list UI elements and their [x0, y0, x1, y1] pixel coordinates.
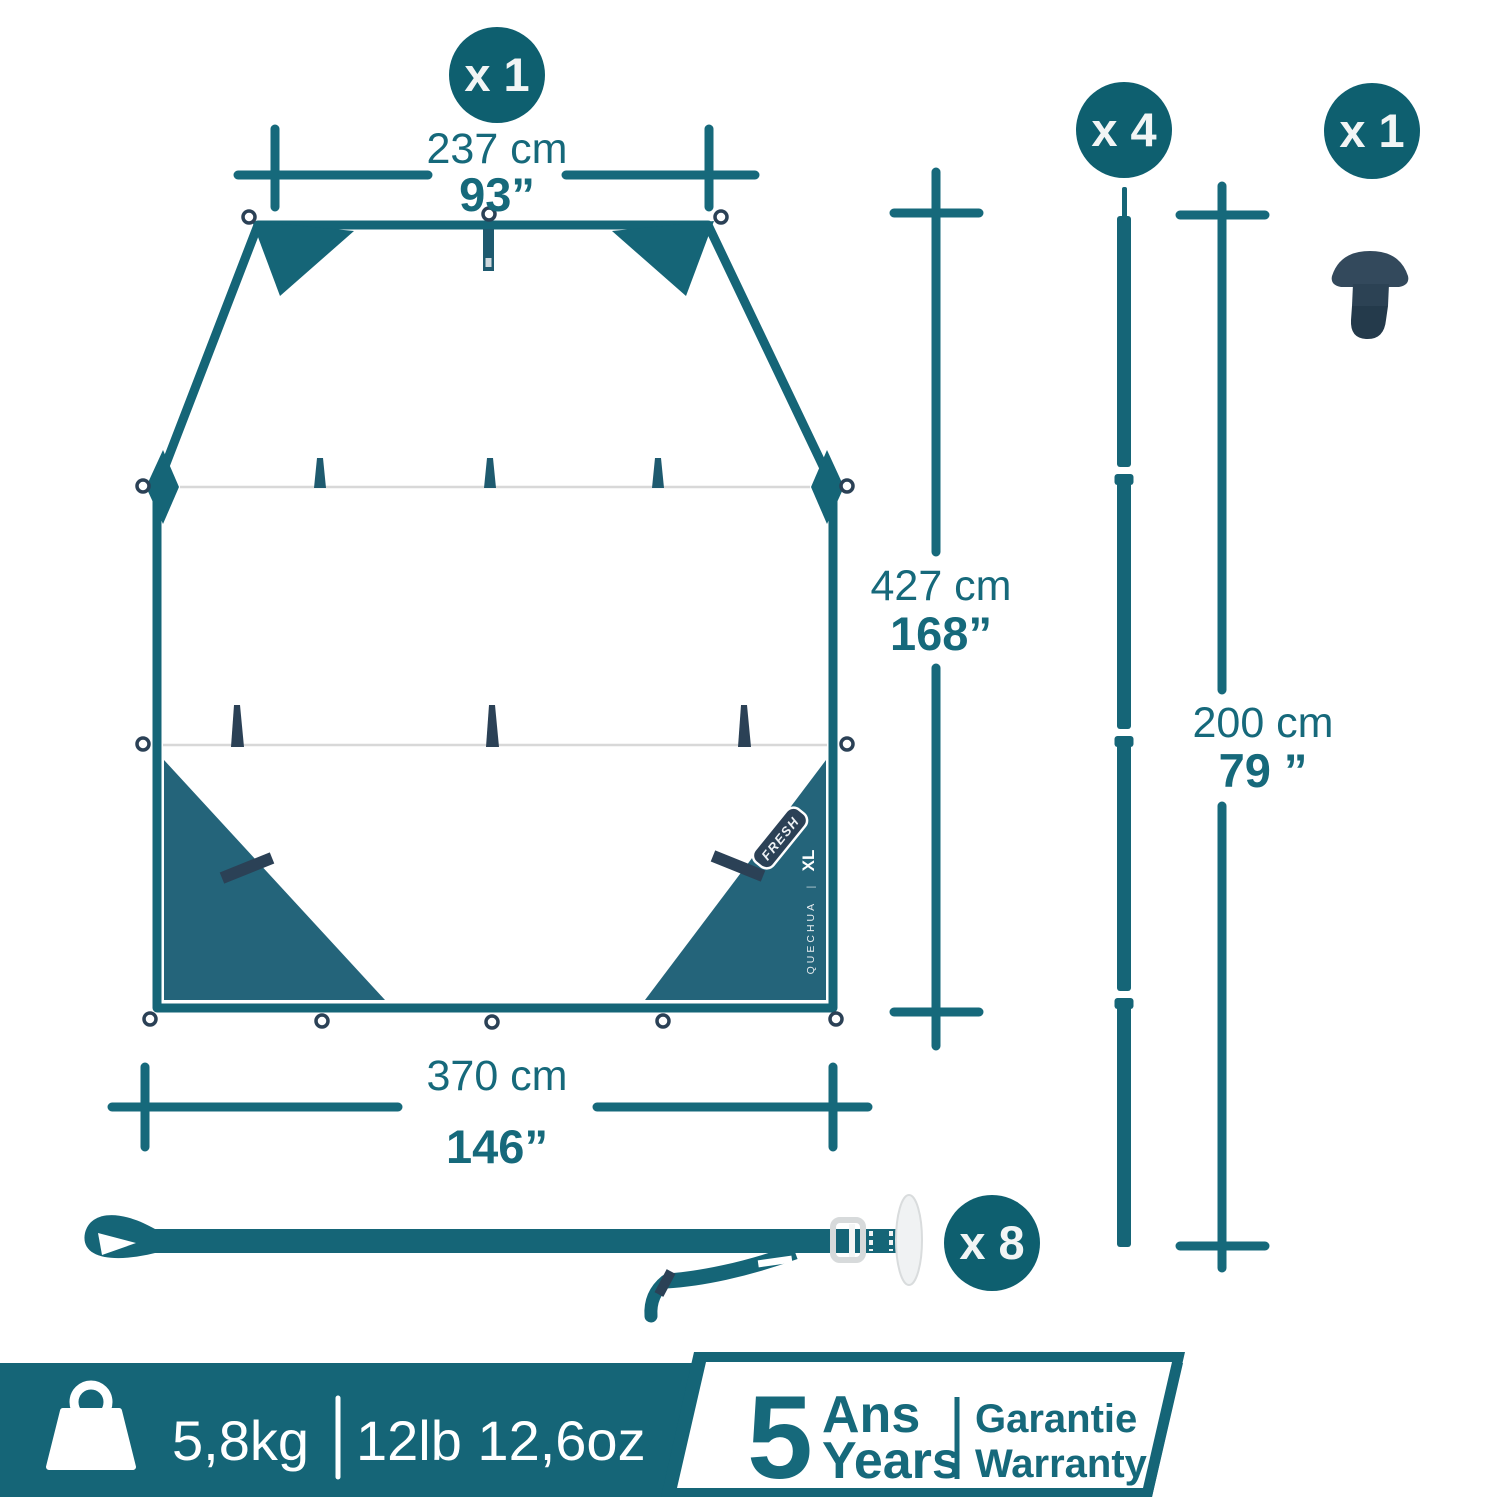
- pole-ferrule: [1115, 474, 1134, 485]
- brand-name: QUECHUA: [805, 901, 817, 975]
- loop-icon: [137, 480, 149, 492]
- badge-count: x 8: [959, 1216, 1024, 1269]
- loop-icon: [830, 1013, 842, 1025]
- dimension-metric: 427 cm: [870, 562, 1011, 610]
- pole-segment: [1117, 216, 1131, 467]
- loop-icon: [841, 480, 853, 492]
- peg-stem-lower: [1351, 306, 1388, 339]
- strap-buckle-window: [849, 1224, 855, 1258]
- weight-metric: 5,8kg: [172, 1409, 309, 1472]
- brand-separator: |: [806, 886, 817, 889]
- strap-illustration: [84, 1195, 922, 1316]
- dimension-metric: 370 cm: [426, 1052, 567, 1100]
- badge-count: x 4: [1091, 103, 1156, 156]
- pole-segment: [1117, 474, 1131, 729]
- pole-segment: [1117, 736, 1131, 991]
- loop-icon: [486, 1016, 498, 1028]
- dimension-metric: 237 cm: [426, 125, 567, 173]
- badge-count: x 1: [464, 48, 529, 101]
- peg-cap: [1332, 251, 1409, 287]
- strap-band: [150, 1229, 910, 1253]
- pole-tip: [1122, 187, 1127, 218]
- tarp-center-strap-buckle: [486, 258, 492, 267]
- dimension-length: 427 cm 168”: [870, 172, 1011, 1046]
- brand-size: XL: [799, 850, 818, 872]
- peg-icon: [1332, 251, 1409, 339]
- peg-stem-upper: [1352, 284, 1389, 306]
- pole-quantity-badge: x 4: [1076, 82, 1172, 178]
- loop-icon: [715, 211, 727, 223]
- dimension-imperial: 79 ”: [1219, 744, 1308, 797]
- dimension-bottom-width: 370 cm 146”: [112, 1052, 868, 1173]
- loop-icon: [137, 738, 149, 750]
- dimension-imperial: 168”: [890, 607, 992, 660]
- strap-disc: [896, 1195, 922, 1285]
- diagram-canvas: FRESH QUECHUA | XL 23: [0, 0, 1500, 1500]
- tarp-illustration: FRESH QUECHUA | XL: [137, 208, 853, 1028]
- strap-left-loop: [84, 1215, 155, 1258]
- warranty-label-en: Years: [822, 1432, 961, 1490]
- dimension-imperial: 93”: [459, 168, 535, 221]
- dimension-top-width: 237 cm 93”: [238, 125, 755, 221]
- spec-banner: 5,8kg 12lb 12,6oz 5 Ans Years Garantie W…: [0, 1352, 1185, 1500]
- loop-icon: [144, 1013, 156, 1025]
- loop-icon: [243, 211, 255, 223]
- strap-quantity-badge: x 8: [944, 1195, 1040, 1291]
- warranty-box: 5 Ans Years Garantie Warranty: [661, 1352, 1185, 1500]
- pole-ferrule: [1115, 998, 1134, 1009]
- peg-quantity-badge: x 1: [1324, 83, 1420, 179]
- pole-ferrule: [1115, 736, 1134, 747]
- strap-loose-end: [666, 1252, 795, 1281]
- loop-icon: [657, 1015, 669, 1027]
- guarantee-en: Warranty: [975, 1442, 1148, 1486]
- guarantee-fr: Garantie: [975, 1397, 1137, 1441]
- loop-icon: [841, 738, 853, 750]
- dimension-pole-height: 200 cm 79 ”: [1180, 186, 1334, 1268]
- pole-illustration: [1115, 187, 1134, 1247]
- loop-icon: [316, 1015, 328, 1027]
- tarp-quantity-badge: x 1: [449, 27, 545, 123]
- dimension-imperial: 146”: [446, 1120, 548, 1173]
- weight-imperial: 12lb 12,6oz: [356, 1409, 646, 1472]
- product-spec-diagram: FRESH QUECHUA | XL 23: [0, 0, 1500, 1500]
- warranty-years: 5: [747, 1372, 813, 1500]
- dimension-metric: 200 cm: [1192, 699, 1333, 747]
- pole-segment: [1117, 998, 1131, 1247]
- badge-count: x 1: [1339, 104, 1404, 157]
